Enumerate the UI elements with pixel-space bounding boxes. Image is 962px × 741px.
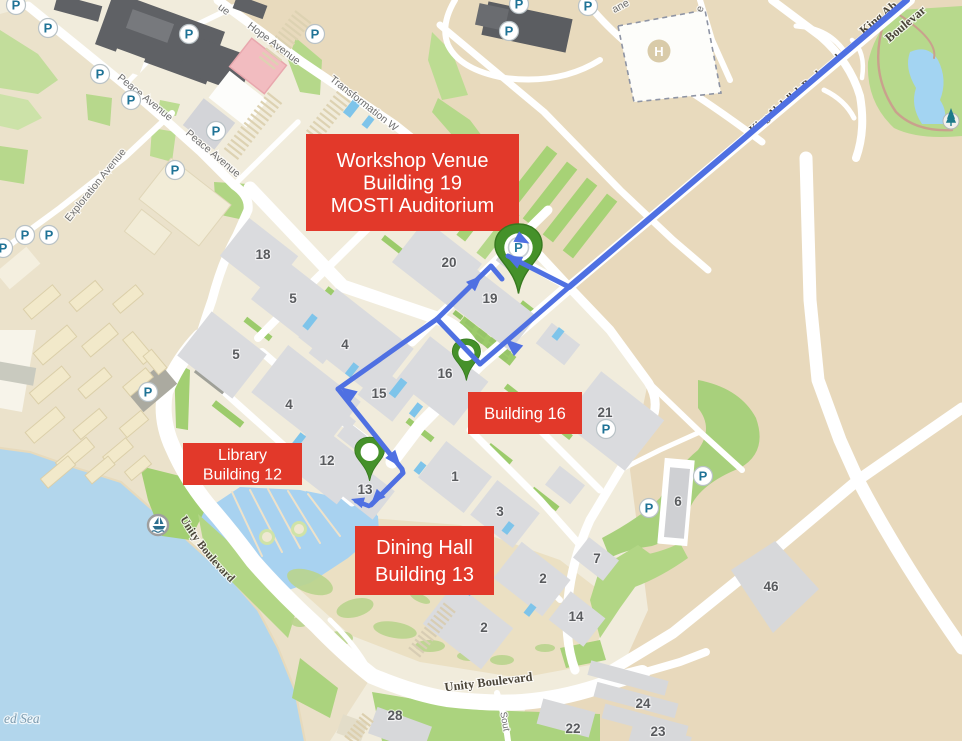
- svg-text:Building 13: Building 13: [375, 564, 474, 586]
- svg-text:P: P: [602, 421, 611, 436]
- svg-text:P: P: [515, 0, 524, 11]
- svg-text:18: 18: [255, 247, 271, 262]
- svg-text:24: 24: [635, 696, 651, 711]
- svg-text:5: 5: [289, 291, 297, 306]
- svg-text:12: 12: [319, 453, 334, 468]
- svg-text:P: P: [171, 162, 180, 177]
- svg-text:5: 5: [232, 347, 240, 362]
- svg-text:P: P: [44, 20, 53, 35]
- svg-text:2: 2: [539, 571, 547, 586]
- svg-text:P: P: [645, 500, 654, 515]
- svg-text:28: 28: [387, 708, 403, 723]
- svg-text:P: P: [144, 384, 153, 399]
- svg-text:14: 14: [568, 609, 584, 624]
- svg-text:2: 2: [480, 620, 488, 635]
- svg-text:P: P: [185, 26, 194, 41]
- svg-text:MOSTI Auditorium: MOSTI Auditorium: [331, 195, 494, 217]
- svg-text:4: 4: [341, 337, 349, 352]
- svg-text:Building 19: Building 19: [363, 173, 462, 195]
- svg-text:19: 19: [482, 291, 497, 306]
- svg-text:Building 16: Building 16: [484, 405, 566, 423]
- svg-text:P: P: [45, 227, 54, 242]
- svg-text:P: P: [212, 123, 221, 138]
- svg-text:H: H: [654, 44, 663, 59]
- svg-text:46: 46: [763, 579, 779, 594]
- svg-text:ed Sea: ed Sea: [4, 711, 40, 726]
- svg-text:15: 15: [371, 386, 387, 401]
- svg-text:P: P: [311, 26, 320, 41]
- svg-text:Dining Hall: Dining Hall: [376, 537, 473, 559]
- svg-text:4: 4: [285, 397, 293, 412]
- svg-text:P: P: [21, 227, 30, 242]
- svg-text:P: P: [0, 240, 8, 255]
- svg-text:21: 21: [597, 405, 613, 420]
- svg-text:22: 22: [565, 721, 580, 736]
- svg-text:3: 3: [496, 504, 504, 519]
- svg-text:P: P: [699, 468, 708, 483]
- svg-text:Building 12: Building 12: [203, 466, 282, 483]
- svg-text:13: 13: [357, 482, 373, 497]
- svg-text:P: P: [584, 0, 593, 13]
- svg-text:16: 16: [437, 366, 453, 381]
- svg-text:Workshop Venue: Workshop Venue: [337, 150, 489, 172]
- svg-text:P: P: [127, 92, 136, 107]
- svg-text:1: 1: [451, 469, 459, 484]
- svg-text:P: P: [12, 0, 21, 12]
- svg-text:6: 6: [674, 494, 682, 509]
- svg-text:20: 20: [441, 255, 456, 270]
- svg-text:Library: Library: [218, 447, 267, 464]
- svg-text:P: P: [505, 23, 514, 38]
- svg-text:23: 23: [650, 724, 666, 739]
- svg-text:7: 7: [593, 551, 601, 566]
- svg-text:P: P: [96, 66, 105, 81]
